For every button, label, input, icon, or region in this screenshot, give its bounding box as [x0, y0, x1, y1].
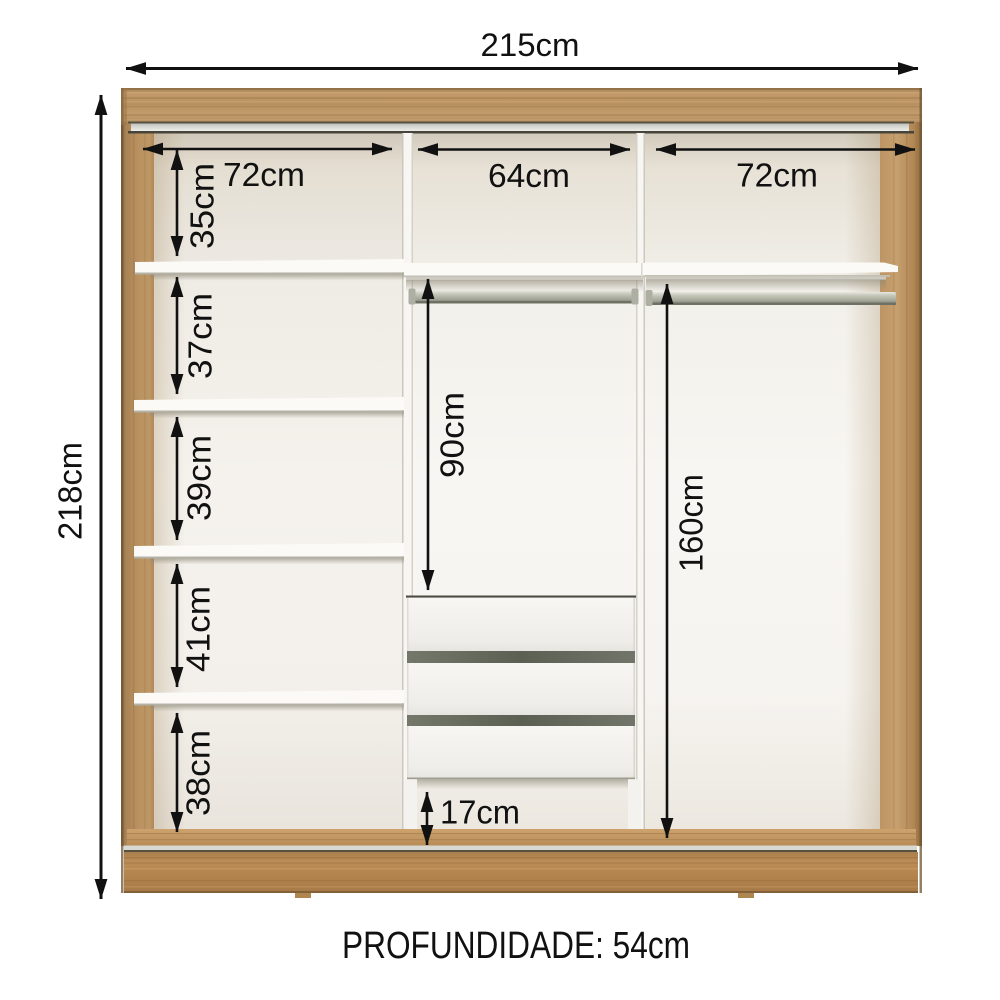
svg-text:37cm: 37cm [182, 293, 219, 379]
svg-text:17cm: 17cm [440, 794, 520, 831]
svg-text:215cm: 215cm [481, 27, 580, 63]
svg-text:PROFUNDIDADE: 54cm: PROFUNDIDADE: 54cm [342, 925, 690, 967]
svg-text:218cm: 218cm [52, 442, 89, 540]
svg-text:35cm: 35cm [184, 163, 221, 249]
svg-text:41cm: 41cm [180, 586, 217, 672]
svg-text:160cm: 160cm [673, 474, 710, 572]
svg-text:38cm: 38cm [180, 730, 217, 816]
svg-text:72cm: 72cm [736, 157, 818, 194]
svg-text:72cm: 72cm [223, 156, 305, 193]
svg-text:90cm: 90cm [434, 392, 471, 478]
svg-text:64cm: 64cm [488, 157, 570, 194]
svg-text:39cm: 39cm [181, 435, 218, 521]
